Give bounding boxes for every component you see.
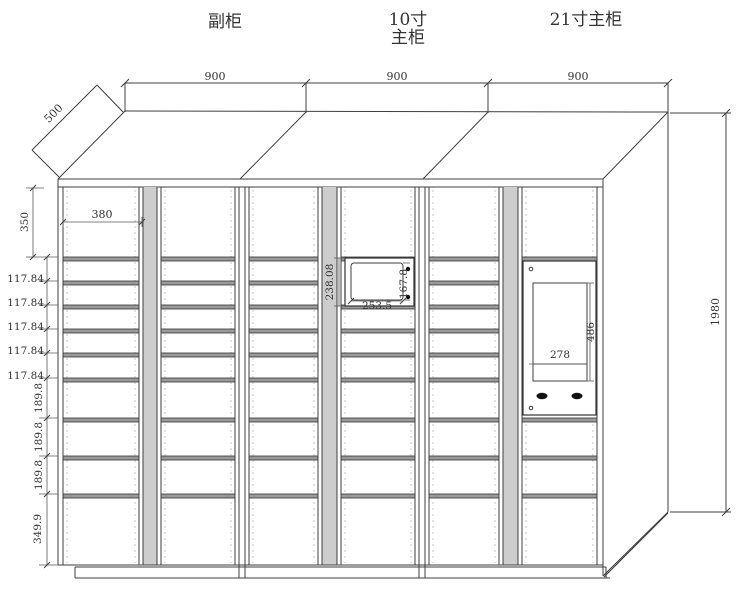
top-width-dimension: 900 900 900 xyxy=(121,70,672,113)
total-height-dimension: 1980 xyxy=(670,109,731,516)
dim-10in-screen-width: 253.5 xyxy=(362,300,392,312)
cabinet-titles: 副柜 10寸 主柜 21寸主柜 xyxy=(208,10,622,48)
dim-medium-row-3: 189.8 xyxy=(33,460,45,490)
speaker-grille-right xyxy=(572,393,583,399)
dim-medium-row-1: 189.8 xyxy=(33,383,45,413)
dim-small-row-3: 117.84 xyxy=(7,321,44,333)
speaker-grille-left xyxy=(537,393,548,399)
dim-top-row-height: 350 xyxy=(19,212,31,232)
dim-top-width-3: 900 xyxy=(568,70,589,83)
dim-10in-screen-height: 167.8 xyxy=(398,269,410,299)
label-21in-cabinet: 21寸主柜 xyxy=(550,10,623,30)
depth-dimension: 500 xyxy=(32,85,123,177)
dim-total-height: 1980 xyxy=(709,298,722,326)
dim-medium-row-2: 189.8 xyxy=(33,422,45,452)
dim-bottom-row: 349.9 xyxy=(32,514,44,544)
top-row-dimension: 350 xyxy=(19,185,44,260)
cabinet-base xyxy=(75,513,668,578)
side-panel xyxy=(603,112,668,576)
dim-21in-screen-height: 486 xyxy=(585,322,597,342)
screen-panel-21in: 486 278 xyxy=(523,261,597,415)
label-aux-cabinet: 副柜 xyxy=(208,12,242,32)
top-face xyxy=(58,111,668,187)
dim-depth: 500 xyxy=(42,102,66,126)
dim-small-row-4: 117.84 xyxy=(7,345,44,357)
door-width-dimension: 380 xyxy=(60,208,145,227)
dim-top-width-1: 900 xyxy=(205,70,226,83)
drawing-canvas: 副柜 10寸 主柜 21寸主柜 900 900 900 500 xyxy=(0,0,750,599)
dim-small-row-5: 117.84 xyxy=(7,370,44,382)
column-junctions xyxy=(143,187,518,565)
row-height-dimension-chain: 117.84 117.84 117.84 117.84 117.84 189.8… xyxy=(7,254,58,568)
dim-21in-screen-width: 278 xyxy=(550,349,570,361)
dim-10in-panel-height: 238.08 xyxy=(324,264,336,301)
cabinet-technical-drawing: 副柜 10寸 主柜 21寸主柜 900 900 900 500 xyxy=(0,0,750,599)
dim-small-row-2: 117.84 xyxy=(7,297,44,309)
dim-door-width: 380 xyxy=(92,208,113,221)
label-10in-cabinet-line1: 10寸 xyxy=(389,10,428,30)
dim-small-row-1: 117.84 xyxy=(7,273,44,285)
label-10in-cabinet-line2: 主柜 xyxy=(391,28,425,48)
dim-top-width-2: 900 xyxy=(387,70,408,83)
